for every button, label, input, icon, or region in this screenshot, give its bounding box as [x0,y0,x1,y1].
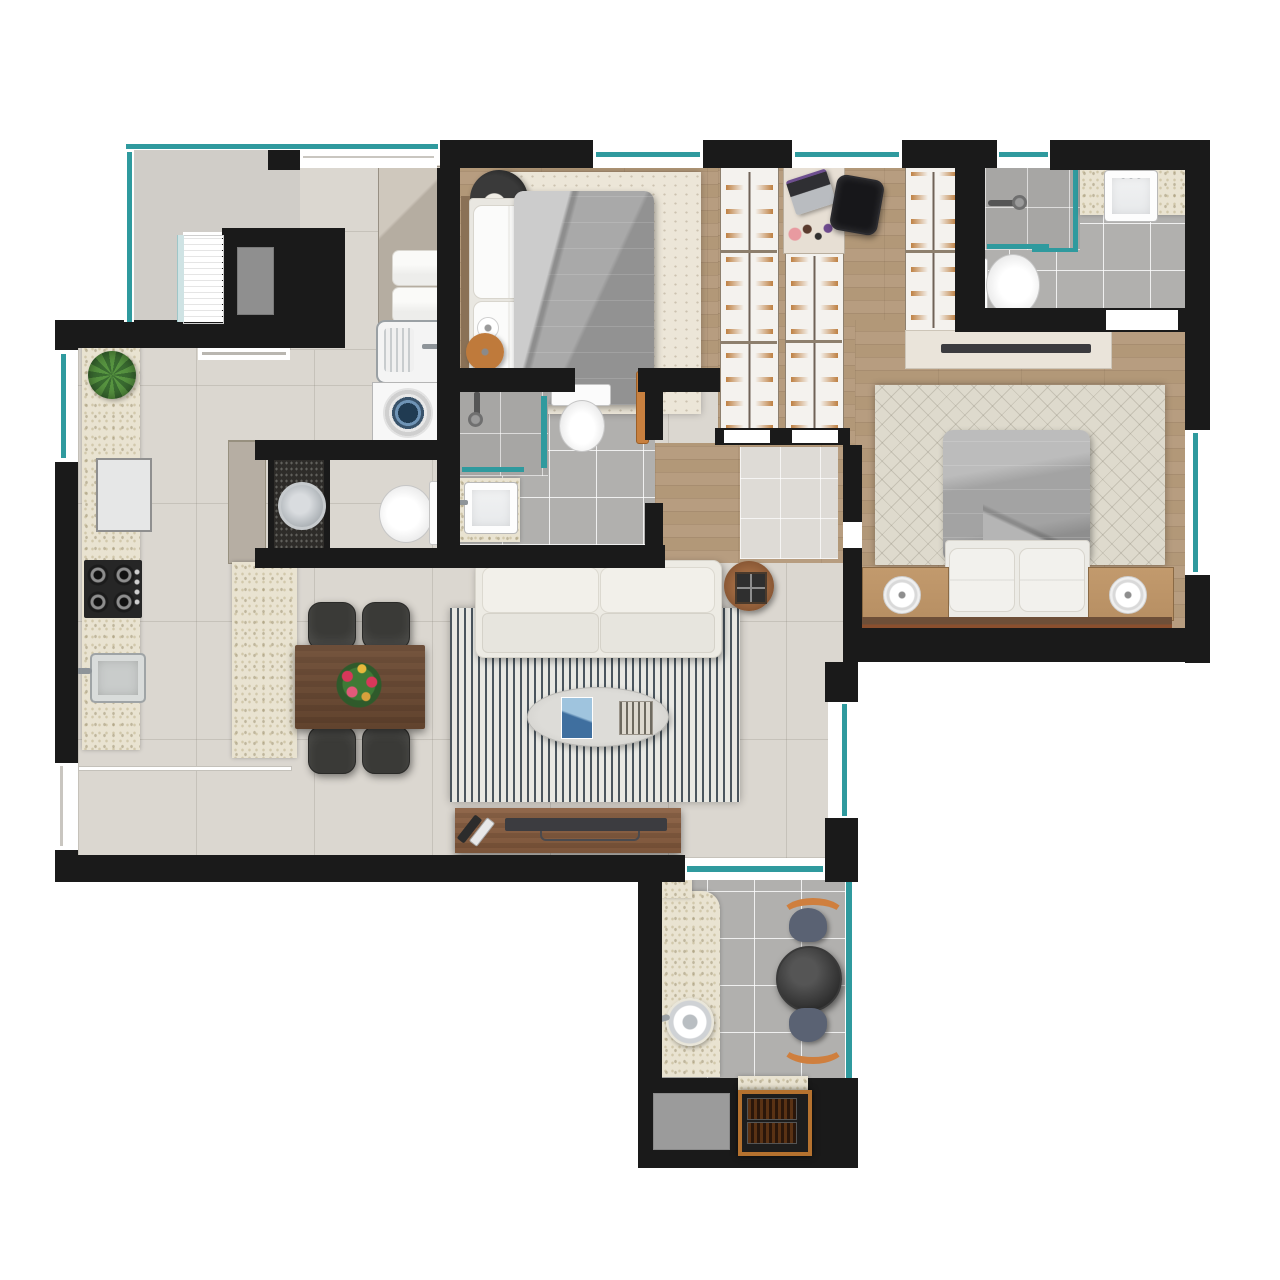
balcony-sink [666,998,714,1046]
door-gap-master [843,522,862,548]
social-glass-partition-v [541,396,547,468]
social-glass-partition-h [462,467,524,472]
window-kitchen-left [55,350,78,462]
kitchen-sink [90,653,146,703]
dining-chair-4 [362,726,410,774]
window-top-3 [997,148,1050,168]
wall-top-2 [703,140,792,168]
wall-living-bottom [55,855,645,882]
wall-top-right-corner [1050,140,1210,170]
window-master-right-glass [1193,433,1198,572]
social-toilet-bowl [559,400,605,452]
wall-socialbath-right-b [645,503,663,545]
refrigerator [96,458,152,532]
wardrobe-left-divider-1 [720,250,777,253]
living-tv-stand [540,831,640,841]
balcony-railing-margin [853,882,860,1078]
wall-bedroom1-bottom-a [440,368,575,392]
master-tv [941,344,1091,353]
wall-socialbath-right-a [645,392,663,440]
flower-centerpiece [330,656,388,714]
window-kitchen-left-glass [61,354,66,458]
ensuite-glass-partition-v [1073,170,1078,250]
ensuite-shower-head [1012,195,1027,210]
window-laundry-line [303,156,434,158]
coffee-table-tray [619,701,653,735]
living-tv [505,818,667,831]
stairs-glass-edge [177,235,184,322]
living-tv-console [455,808,681,853]
wall-powder-top [255,440,452,460]
balcony-chair-top-seat [789,908,827,942]
wall-living-right-pier-1 [825,662,858,702]
wall-closet-ensuite [955,140,985,332]
social-shower-head [468,412,483,427]
master-lamp-right [1109,576,1147,614]
wardrobe-left-divider-2 [720,341,777,344]
powder-toilet-bowl [379,485,433,543]
barbecue-grill [738,1090,812,1156]
sofa-back-cushion-2 [600,567,715,613]
window-top-1 [593,148,703,168]
door-gap-closet-1 [724,430,770,443]
core-window-top-glass [126,144,438,149]
social-sink [464,482,518,534]
office-chair [829,173,886,236]
elevator [237,247,274,315]
wall-master-bottom [843,628,1210,662]
balcony-chair-bottom-back [781,1030,845,1064]
powder-vessel-sink [278,482,326,530]
balcony-glass-railing [846,882,852,1078]
social-shower-area [458,392,548,476]
ensuite-sink [1104,170,1158,222]
wall-powder-bottom [255,548,455,568]
wall-living-right-pier-2 [825,818,858,882]
door-gap-ensuite [1106,310,1178,330]
wall-bedroom1-bottom-b [638,368,720,392]
master-nightstand-right [1088,567,1174,621]
window-top-2 [792,148,902,168]
ensuite-shower-area [985,168,1080,250]
balcony-storage-box [653,1093,730,1150]
balcony-sliding-door-glass [687,866,823,872]
window-living-left-line [60,766,63,846]
stairs [183,235,224,324]
window-living-right-glass [842,704,847,816]
dining-chair-3 [308,726,356,774]
window-top-3-glass [999,152,1048,157]
window-top-2-glass [795,152,899,157]
wall-right-upper [1185,168,1210,430]
dining-chair-2 [362,602,410,650]
entry-door-line [198,348,290,360]
balcony-table [776,946,842,1012]
wall-top-1 [440,140,593,168]
cooktop [84,560,142,618]
potted-plant [88,351,136,399]
bedroom1-side-table [466,333,504,371]
grill-coals-1 [747,1098,797,1120]
grill-coals-2 [747,1122,797,1144]
coffee-table-book [561,697,593,739]
master-lamp-left [883,576,921,614]
balcony-counter [662,891,720,1077]
kitchen-island [232,562,297,758]
floor-plan [0,0,1280,1280]
sofa-seat-cushion-1 [482,613,599,653]
utility-sink-washboard [384,328,414,372]
sofa-seat-cushion-2 [600,613,715,653]
kitchen-faucet [76,668,92,674]
washer-door [383,388,433,438]
living-side-table [724,561,774,611]
master-tv-console [905,330,1112,369]
master-pillow-2 [1019,548,1085,612]
coffee-table [527,687,669,747]
master-nightstand-left [862,567,949,621]
floor-corridor-tile [740,447,838,559]
sofa-back-cushion-1 [482,567,599,613]
wardrobe-right-divider [905,250,960,253]
door-gap-closet-2 [792,430,838,443]
core-window-left-glass [127,152,132,322]
dining-chair-1 [308,602,356,650]
sofa [475,560,722,658]
wall-socialbath-bottom [437,545,665,568]
window-top-1-glass [596,152,700,157]
window-living-left [55,763,78,850]
wardrobe-left [720,166,779,444]
side-table-tray [735,572,767,604]
wardrobe-middle-divider [785,340,842,343]
ensuite-glass-partition-h2 [1032,248,1078,252]
ensuite-toilet-bowl [986,254,1040,316]
entry-door-leaf-line [202,352,286,355]
window-laundry-band [300,148,437,168]
wardrobe-middle [785,250,844,444]
floor-core-hall-strip [133,232,183,330]
master-pillow-1 [949,548,1015,612]
living-left-door-swing-line [78,766,292,771]
